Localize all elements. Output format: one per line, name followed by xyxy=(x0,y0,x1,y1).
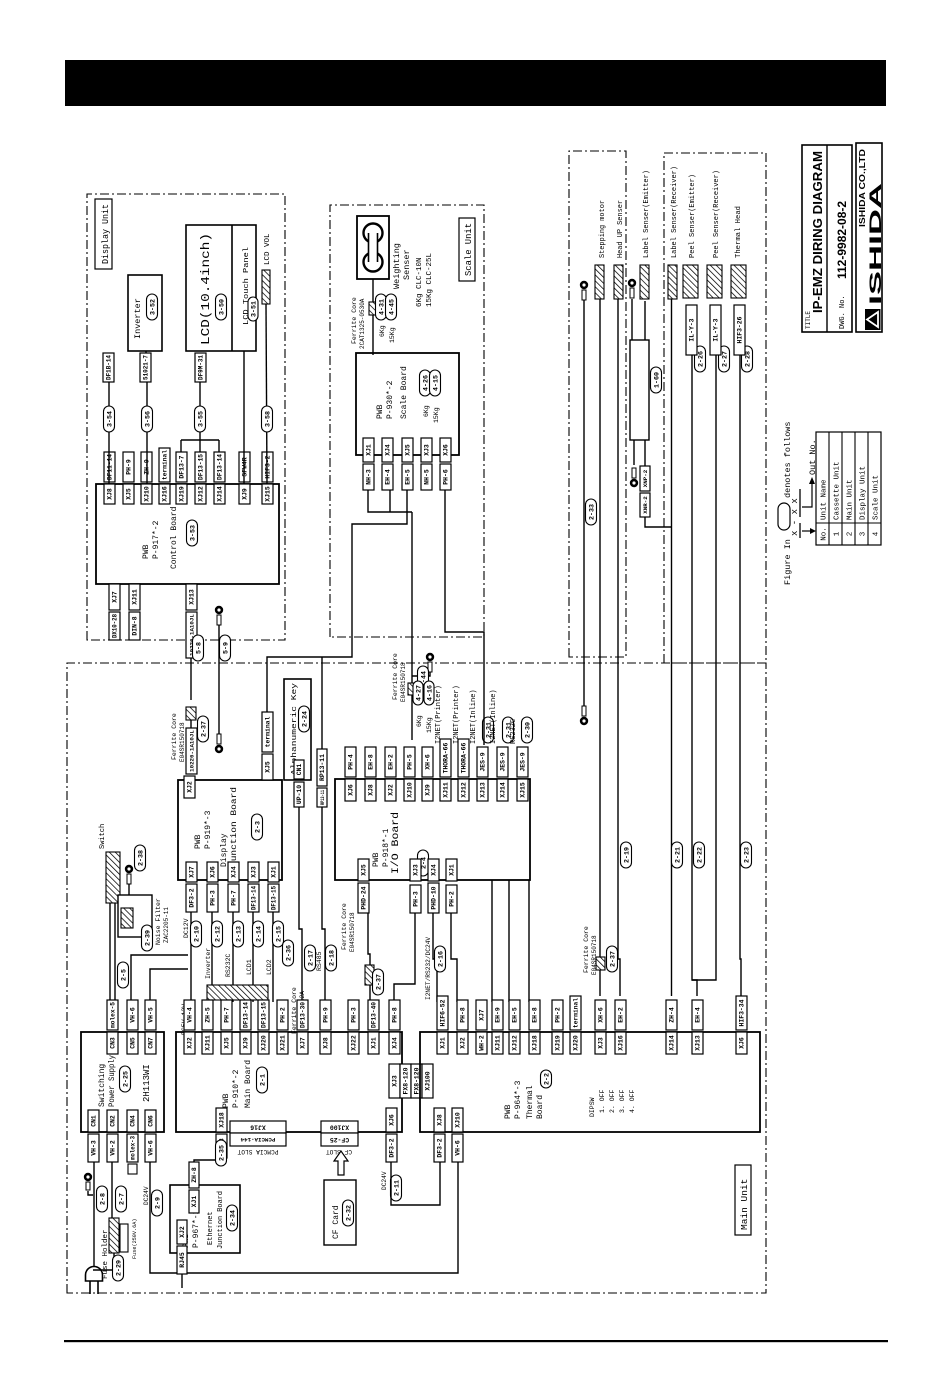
svg-text:XJ21: XJ21 xyxy=(280,1035,287,1051)
svg-text:PCMCIA-144: PCMCIA-144 xyxy=(240,1136,275,1143)
svg-text:3-52: 3-52 xyxy=(149,299,156,315)
svg-text:XJ1: XJ1 xyxy=(449,864,456,876)
svg-text:No.: No. xyxy=(821,527,829,541)
svg-text:4-45: 4-45 xyxy=(388,299,395,315)
svg-text:LCD VOL: LCD VOL xyxy=(264,233,272,265)
svg-text:XJ12: XJ12 xyxy=(198,486,205,502)
svg-text:XJ2: XJ2 xyxy=(187,1037,194,1049)
svg-text:EH-2: EH-2 xyxy=(388,754,395,770)
svg-text:2-17: 2-17 xyxy=(307,950,314,966)
svg-text:XJ4: XJ4 xyxy=(385,444,392,456)
svg-text:2-2: 2-2 xyxy=(543,1073,550,1085)
svg-text:2-23: 2-23 xyxy=(743,847,750,863)
svg-text:CN2: CN2 xyxy=(110,1115,117,1127)
svg-text:2-18: 2-18 xyxy=(328,950,335,966)
svg-text:2-33: 2-33 xyxy=(588,504,595,520)
svg-text:DX10-28: DX10-28 xyxy=(112,614,119,638)
svg-text:Main Unit: Main Unit xyxy=(739,1179,750,1230)
svg-text:2-5: 2-5 xyxy=(120,969,127,981)
svg-text:THORA-66: THORA-66 xyxy=(461,742,468,773)
svg-text:Noise Filter: Noise Filter xyxy=(155,898,162,945)
svg-text:4. OFF: 4. OFF xyxy=(629,1089,636,1113)
svg-text:VH-6: VH-6 xyxy=(455,1140,462,1156)
svg-text:XJ10: XJ10 xyxy=(407,782,414,798)
svg-text:P-910*-2: P-910*-2 xyxy=(232,1069,241,1108)
svg-text:Display Unit: Display Unit xyxy=(100,204,111,264)
svg-text:Figure In: Figure In xyxy=(783,539,793,585)
svg-text:DIPSW: DIPSW xyxy=(589,1097,596,1117)
svg-text:EH-4: EH-4 xyxy=(695,1007,702,1023)
svg-text:4-27: 4-27 xyxy=(415,685,422,701)
svg-text:Senser: Senser xyxy=(402,249,412,280)
svg-text:2-34: 2-34 xyxy=(229,1210,236,1226)
svg-text:DC24V: DC24V xyxy=(381,1171,388,1190)
svg-text:EH-5: EH-5 xyxy=(512,1007,519,1023)
svg-text:RP13-11: RP13-11 xyxy=(319,754,326,781)
svg-text:2-38: 2-38 xyxy=(137,850,144,866)
svg-text:HIF6-52: HIF6-52 xyxy=(440,999,447,1026)
svg-text:PHD-24: PHD-24 xyxy=(361,886,368,909)
svg-text:EH-5: EH-5 xyxy=(405,469,412,485)
svg-text:XJ7: XJ7 xyxy=(112,591,119,603)
svg-text:DF13-14: DF13-14 xyxy=(217,454,224,480)
svg-text:RS232C: RS232C xyxy=(510,719,518,744)
svg-text:x - x x: x - x x xyxy=(790,498,800,536)
svg-text:2-26: 2-26 xyxy=(697,351,704,367)
svg-text:VH-2: VH-2 xyxy=(110,1140,117,1156)
svg-text:PH-2: PH-2 xyxy=(449,891,456,907)
svg-text:VH-6: VH-6 xyxy=(130,1007,137,1023)
svg-text:112-9982-08-2: 112-9982-08-2 xyxy=(835,201,849,279)
svg-text:XJ5: XJ5 xyxy=(224,1037,231,1049)
svg-text:2CAT1325-0530A: 2CAT1325-0530A xyxy=(359,298,366,349)
svg-text:3: 3 xyxy=(860,531,868,536)
svg-text:XJ11: XJ11 xyxy=(443,782,450,798)
svg-text:THORA-66: THORA-66 xyxy=(443,742,450,773)
svg-text:PH-6: PH-6 xyxy=(443,469,450,485)
svg-text:XJ9: XJ9 xyxy=(243,1037,250,1049)
svg-text:Label Senser(Receiver): Label Senser(Receiver) xyxy=(671,166,679,258)
svg-text:XJ3: XJ3 xyxy=(413,864,420,876)
svg-text:PHD-10: PHD-10 xyxy=(431,886,438,909)
svg-text:P-964*-3: P-964*-3 xyxy=(514,1080,523,1119)
svg-text:VH-3: VH-3 xyxy=(91,1140,98,1156)
svg-text:Main Unit: Main Unit xyxy=(847,479,855,520)
svg-text:denotes follows: denotes follows xyxy=(783,421,793,498)
svg-text:I2NET/RS232/DC24V: I2NET/RS232/DC24V xyxy=(425,937,432,1000)
svg-text:2-39: 2-39 xyxy=(144,930,151,946)
svg-text:10226-1A10JL: 10226-1A10JL xyxy=(189,730,196,772)
svg-text:Ferrite Core: Ferrite Core xyxy=(171,713,178,760)
svg-text:2-22: 2-22 xyxy=(696,847,703,863)
svg-text:ZH-4: ZH-4 xyxy=(669,1007,676,1023)
svg-text:PWB: PWB xyxy=(504,1104,513,1119)
svg-text:15Kg: 15Kg xyxy=(433,407,440,423)
svg-text:E04SR150718: E04SR150718 xyxy=(591,935,598,975)
svg-text:XJ11: XJ11 xyxy=(132,589,139,605)
svg-text:XJ7: XJ7 xyxy=(300,1037,307,1049)
svg-text:XJ15: XJ15 xyxy=(265,486,272,502)
svg-text:Fuse(250V.6A): Fuse(250V.6A) xyxy=(132,1219,138,1259)
svg-text:XJ5: XJ5 xyxy=(265,761,272,773)
svg-text:EH-8: EH-8 xyxy=(532,1007,539,1023)
svg-text:ISHIDA CO.,LTD: ISHIDA CO.,LTD xyxy=(857,149,867,227)
svg-text:Switch: Switch xyxy=(99,824,107,849)
svg-text:JES-9: JES-9 xyxy=(480,752,487,771)
svg-text:XJ12: XJ12 xyxy=(512,1035,519,1051)
svg-text:XJ13: XJ13 xyxy=(189,589,196,605)
svg-text:XJ3: XJ3 xyxy=(424,444,431,456)
svg-text:VH-5: VH-5 xyxy=(148,1007,155,1023)
svg-text:XJ6: XJ6 xyxy=(348,784,355,796)
svg-text:XJ5: XJ5 xyxy=(405,444,412,456)
svg-text:XJ19: XJ19 xyxy=(179,486,186,502)
svg-text:Label Senser(Emitter): Label Senser(Emitter) xyxy=(643,170,651,258)
svg-text:Thermal Head: Thermal Head xyxy=(735,206,743,258)
svg-text:XJ18: XJ18 xyxy=(532,1035,539,1051)
svg-text:4-16: 4-16 xyxy=(426,685,433,701)
svg-text:15Kg: 15Kg xyxy=(426,717,433,733)
svg-text:2-9: 2-9 xyxy=(154,1197,161,1209)
svg-text:DF9M-31: DF9M-31 xyxy=(198,355,205,380)
svg-text:UP-10: UP-10 xyxy=(296,785,303,804)
svg-text:DF13-15: DF13-15 xyxy=(261,1002,268,1028)
svg-text:ISHIDA: ISHIDA xyxy=(866,183,885,305)
svg-text:2-15: 2-15 xyxy=(275,926,282,942)
svg-text:2-36: 2-36 xyxy=(285,945,292,961)
svg-text:XJ19: XJ19 xyxy=(555,1035,562,1051)
svg-text:15Kg CLC-25L: 15Kg CLC-25L xyxy=(426,252,434,307)
svg-text:XJ1: XJ1 xyxy=(371,1037,378,1049)
svg-text:2-29: 2-29 xyxy=(115,1260,122,1276)
svg-text:6Kg CLC-10N: 6Kg CLC-10N xyxy=(416,257,424,307)
svg-text:IP-EMZ DIRING DIAGRAM: IP-EMZ DIRING DIAGRAM xyxy=(811,151,825,313)
svg-text:2-37: 2-37 xyxy=(200,721,207,737)
svg-text:XJ8: XJ8 xyxy=(107,488,114,500)
svg-text:Scale Unit: Scale Unit xyxy=(873,475,881,520)
svg-text:XJ3: XJ3 xyxy=(392,1075,399,1087)
svg-text:XJ100: XJ100 xyxy=(425,1071,432,1090)
svg-text:terminal: terminal xyxy=(265,716,272,747)
svg-text:PWB: PWB xyxy=(194,834,203,849)
svg-text:XJ4: XJ4 xyxy=(231,866,238,878)
svg-text:IL-Y-3: IL-Y-3 xyxy=(713,318,720,341)
svg-text:1-60: 1-60 xyxy=(653,372,660,388)
svg-text:15Kg: 15Kg xyxy=(389,327,396,343)
svg-text:DIN-8: DIN-8 xyxy=(132,616,139,635)
svg-text:P-918*-1: P-918*-1 xyxy=(382,828,391,867)
svg-text:I2NET(Inline): I2NET(Inline) xyxy=(470,689,478,744)
svg-text:5-9: 5-9 xyxy=(222,642,229,654)
svg-text:DF13-15: DF13-15 xyxy=(198,454,205,480)
svg-text:EH-2: EH-2 xyxy=(618,1007,625,1023)
svg-text:I2NET(Inline): I2NET(Inline) xyxy=(490,689,498,744)
svg-text:EH-9: EH-9 xyxy=(495,1007,502,1023)
svg-text:I/O Board: I/O Board xyxy=(390,812,402,874)
svg-text:4-31: 4-31 xyxy=(378,299,385,315)
svg-text:1. OFF: 1. OFF xyxy=(599,1089,606,1113)
svg-text:DF3-2: DF3-2 xyxy=(389,1138,396,1157)
svg-text:Inverter: Inverter xyxy=(133,298,143,339)
svg-text:Ferrite Core: Ferrite Core xyxy=(392,653,399,700)
svg-text:VH-4: VH-4 xyxy=(187,1007,194,1023)
svg-text:PWB: PWB xyxy=(376,404,385,419)
svg-text:XJ14: XJ14 xyxy=(217,486,224,502)
svg-text:PH-3: PH-3 xyxy=(351,1007,358,1023)
svg-text:Stepping motor: Stepping motor xyxy=(599,200,607,258)
svg-text:Junction Board: Junction Board xyxy=(230,787,239,867)
svg-text:XJ6: XJ6 xyxy=(389,1114,396,1126)
svg-text:XNP-2: XNP-2 xyxy=(642,469,649,487)
svg-text:I2NET(Printer): I2NET(Printer) xyxy=(435,685,443,744)
svg-text:XJ13: XJ13 xyxy=(695,1035,702,1051)
svg-text:3. OFF: 3. OFF xyxy=(619,1089,626,1113)
svg-text:PH-9: PH-9 xyxy=(126,459,133,475)
svg-text:PH-5: PH-5 xyxy=(407,754,414,770)
svg-text:XJ16: XJ16 xyxy=(250,1124,266,1131)
svg-text:3-50: 3-50 xyxy=(218,299,225,315)
svg-text:2-1: 2-1 xyxy=(259,1074,266,1086)
svg-text:PWB: PWB xyxy=(142,544,151,559)
svg-text:XJ6: XJ6 xyxy=(210,866,217,878)
svg-text:DF13-30: DF13-30 xyxy=(300,1002,307,1028)
svg-text:Unit Name: Unit Name xyxy=(821,479,829,520)
svg-text:4-26: 4-26 xyxy=(422,375,429,391)
svg-text:XJ18: XJ18 xyxy=(219,1112,226,1128)
svg-text:DF3-2: DF3-2 xyxy=(437,1138,444,1157)
svg-text:XJ11: XJ11 xyxy=(495,1035,502,1051)
svg-text:Thermal: Thermal xyxy=(526,1085,535,1119)
svg-text:DF13-15: DF13-15 xyxy=(271,886,278,910)
svg-text:XJ13: XJ13 xyxy=(480,782,487,798)
svg-text:XJ1: XJ1 xyxy=(271,866,278,878)
svg-text:2H113WI: 2H113WI xyxy=(142,1064,152,1102)
svg-text:XJ10: XJ10 xyxy=(455,1112,462,1128)
svg-text:IL-Y-3: IL-Y-3 xyxy=(689,318,696,341)
svg-text:PWB: PWB xyxy=(372,852,381,867)
svg-text:XJ9: XJ9 xyxy=(425,784,432,796)
svg-text:2. OFF: 2. OFF xyxy=(609,1089,616,1113)
svg-text:XNR-2: XNR-2 xyxy=(642,496,649,514)
svg-text:DF13-40: DF13-40 xyxy=(371,1002,378,1028)
svg-text:2-12: 2-12 xyxy=(214,926,221,942)
svg-text:DC24V: DC24V xyxy=(143,1186,150,1205)
svg-text:CF Card: CF Card xyxy=(332,1205,341,1239)
svg-text:2-27: 2-27 xyxy=(721,351,728,367)
svg-text:ZH-5: ZH-5 xyxy=(205,1007,212,1023)
svg-text:Scale Board: Scale Board xyxy=(400,366,409,419)
svg-text:ZAC2205-11: ZAC2205-11 xyxy=(163,907,170,943)
svg-text:XJ3: XJ3 xyxy=(598,1037,605,1049)
svg-text:2-24: 2-24 xyxy=(301,711,308,727)
svg-text:PH-2: PH-2 xyxy=(555,1007,562,1023)
svg-text:2-21: 2-21 xyxy=(674,847,681,863)
svg-text:DF13-14: DF13-14 xyxy=(243,1002,250,1028)
svg-text:2-11: 2-11 xyxy=(393,1180,400,1196)
svg-text:XJ7: XJ7 xyxy=(189,866,196,878)
svg-text:XJ8: XJ8 xyxy=(323,1037,330,1049)
svg-text:EH-4: EH-4 xyxy=(385,469,392,485)
svg-text:PH-7: PH-7 xyxy=(231,890,238,906)
svg-text:2-13: 2-13 xyxy=(235,926,242,942)
svg-text:XJ2: XJ2 xyxy=(179,1226,186,1238)
svg-text:DF11-14: DF11-14 xyxy=(107,454,114,480)
svg-text:XJ100: XJ100 xyxy=(330,1124,349,1131)
svg-text:XJ2: XJ2 xyxy=(388,784,395,796)
svg-text:CN7: CN7 xyxy=(148,1037,155,1049)
svg-text:3-54: 3-54 xyxy=(106,411,113,427)
svg-text:3-56: 3-56 xyxy=(144,411,151,427)
svg-text:6Kg: 6Kg xyxy=(416,715,423,727)
svg-text:XJ6: XJ6 xyxy=(443,444,450,456)
svg-text:XJ14: XJ14 xyxy=(669,1035,676,1051)
svg-text:I2NET(Printer): I2NET(Printer) xyxy=(453,685,461,744)
svg-text:CF-25: CF-25 xyxy=(330,1136,349,1143)
svg-text:XJ7: XJ7 xyxy=(479,1009,486,1021)
svg-text:DF13-7: DF13-7 xyxy=(179,455,186,478)
svg-text:2-32: 2-32 xyxy=(345,1205,352,1221)
svg-text:2-7: 2-7 xyxy=(118,1193,125,1205)
svg-text:RS232C: RS232C xyxy=(225,953,232,977)
svg-text:2-37: 2-37 xyxy=(375,974,382,990)
svg-text:XJ6: XJ6 xyxy=(739,1037,746,1049)
svg-text:Control Board: Control Board xyxy=(170,506,179,569)
svg-text:JES-9: JES-9 xyxy=(520,752,527,771)
svg-text:XJ16: XJ16 xyxy=(618,1035,625,1051)
svg-text:CN3: CN3 xyxy=(110,1037,117,1049)
svg-text:XJ2: XJ2 xyxy=(187,781,194,793)
svg-text:Junction Board: Junction Board xyxy=(217,1191,225,1249)
svg-text:P-930*-2: P-930*-2 xyxy=(386,380,395,419)
svg-text:5-8: 5-8 xyxy=(195,642,202,654)
svg-text:XJ5: XJ5 xyxy=(126,488,133,500)
svg-text:PH-2: PH-2 xyxy=(280,1007,287,1023)
svg-text:XH-6: XH-6 xyxy=(425,754,432,770)
svg-text:XJ2: XJ2 xyxy=(460,1037,467,1049)
svg-text:XJ1: XJ1 xyxy=(440,1037,447,1049)
svg-text:3-53: 3-53 xyxy=(189,525,196,541)
svg-text:PH-3: PH-3 xyxy=(413,891,420,907)
svg-text:Switching: Switching xyxy=(98,1064,107,1107)
svg-text:2-37: 2-37 xyxy=(609,951,616,967)
svg-text:NH-5: NH-5 xyxy=(424,469,431,485)
svg-text:JES-9: JES-9 xyxy=(500,752,507,771)
svg-text:2: 2 xyxy=(847,532,855,537)
svg-text:PWB: PWB xyxy=(222,1093,231,1108)
svg-text:LCD1: LCD1 xyxy=(246,959,253,975)
svg-text:Cassette Unit: Cassette Unit xyxy=(834,461,842,520)
svg-text:CN1: CN1 xyxy=(296,763,303,775)
svg-text:2-16: 2-16 xyxy=(437,951,444,967)
svg-text:Board: Board xyxy=(536,1095,545,1119)
svg-text:2-30: 2-30 xyxy=(524,722,531,738)
svg-text:XJ11: XJ11 xyxy=(205,1035,212,1051)
svg-text:51021-7: 51021-7 xyxy=(143,355,150,380)
svg-text:RP13-11: RP13-11 xyxy=(320,790,326,805)
svg-text:3-55: 3-55 xyxy=(197,411,204,427)
svg-text:Weighting: Weighting xyxy=(392,243,402,289)
svg-text:PH-8: PH-8 xyxy=(392,1007,399,1023)
svg-text:XJ1: XJ1 xyxy=(366,444,373,456)
svg-text:2-14: 2-14 xyxy=(255,926,262,942)
svg-text:2-19: 2-19 xyxy=(623,847,630,863)
svg-text:2-10: 2-10 xyxy=(193,926,200,942)
svg-text:Ferrite Core: Ferrite Core xyxy=(583,926,590,973)
svg-text:2-25: 2-25 xyxy=(122,1071,129,1087)
svg-text:XH-6: XH-6 xyxy=(598,1007,605,1023)
svg-text:Peel Senser(Emitter): Peel Senser(Emitter) xyxy=(689,174,697,258)
svg-text:CN1: CN1 xyxy=(91,1115,98,1127)
svg-text:XJ22: XJ22 xyxy=(351,1035,358,1051)
svg-text:CN5: CN5 xyxy=(130,1037,137,1049)
svg-text:XJ9: XJ9 xyxy=(242,488,249,500)
svg-text:SFW4R: SFW4R xyxy=(242,457,249,476)
svg-text:Ferrite Core: Ferrite Core xyxy=(351,297,358,344)
svg-text:LCD(10.4inch): LCD(10.4inch) xyxy=(200,233,213,345)
svg-text:HIF3-34: HIF3-34 xyxy=(739,999,746,1026)
svg-text:6Kg: 6Kg xyxy=(423,405,430,417)
svg-text:PH-7: PH-7 xyxy=(224,1007,231,1023)
svg-text:XJ1: XJ1 xyxy=(191,1195,198,1207)
svg-text:molex-5: molex-5 xyxy=(110,1002,117,1028)
svg-text:Head UP Senser: Head UP Senser xyxy=(617,200,625,258)
svg-text:XJ4: XJ4 xyxy=(431,864,438,876)
svg-text:PH-3: PH-3 xyxy=(210,890,217,906)
svg-text:Ethernet: Ethernet xyxy=(207,1211,215,1245)
svg-text:NH-3: NH-3 xyxy=(366,469,373,485)
svg-text:4-15: 4-15 xyxy=(432,375,439,391)
svg-text:WH-2: WH-2 xyxy=(479,1035,486,1051)
svg-text:XJ4: XJ4 xyxy=(392,1037,399,1049)
svg-text:XJ12: XJ12 xyxy=(461,782,468,798)
svg-text:FX8-120: FX8-120 xyxy=(403,1067,410,1094)
svg-text:XJ8: XJ8 xyxy=(437,1114,444,1126)
svg-text:2-35: 2-35 xyxy=(218,1145,225,1161)
svg-text:Inverter: Inverter xyxy=(205,948,212,979)
svg-text:Main Board: Main Board xyxy=(244,1060,253,1108)
svg-text:PH-4: PH-4 xyxy=(348,754,355,770)
svg-text:Peel Senser(Receiver): Peel Senser(Receiver) xyxy=(713,170,721,258)
svg-text:P-967*-1: P-967*-1 xyxy=(192,1209,201,1248)
svg-text:XJ15: XJ15 xyxy=(520,782,527,798)
svg-text:2-3: 2-3 xyxy=(254,821,261,833)
svg-text:Ferrite Core: Ferrite Core xyxy=(341,903,348,950)
svg-text:2-8: 2-8 xyxy=(99,1193,106,1205)
svg-text:VH-6: VH-6 xyxy=(148,1140,155,1156)
svg-text:PCMCIA SLOT: PCMCIA SLOT xyxy=(237,1148,278,1155)
svg-text:EH-8: EH-8 xyxy=(368,754,375,770)
svg-text:RJ45: RJ45 xyxy=(179,1252,186,1268)
svg-text:PH-8: PH-8 xyxy=(460,1007,467,1023)
svg-text:molex-3: molex-3 xyxy=(130,1136,137,1160)
svg-text:E04SR150718: E04SR150718 xyxy=(349,912,356,952)
svg-text:XJ3: XJ3 xyxy=(251,866,258,878)
svg-text:CN6: CN6 xyxy=(148,1115,155,1127)
svg-text:ZH-8: ZH-8 xyxy=(191,1167,198,1183)
svg-text:XJ16: XJ16 xyxy=(162,486,169,502)
svg-text:DC12V: DC12V xyxy=(183,918,190,938)
svg-text:Power Supply: Power Supply xyxy=(108,1055,117,1107)
svg-text:6Kg: 6Kg xyxy=(379,325,386,337)
svg-text:XJ20: XJ20 xyxy=(573,1035,580,1051)
svg-text:DF13-14: DF13-14 xyxy=(251,886,258,910)
svg-text:Display Unit: Display Unit xyxy=(860,466,868,520)
svg-text:XJ5: XJ5 xyxy=(361,864,368,876)
svg-text:DF3-2: DF3-2 xyxy=(189,888,196,907)
svg-text:RS485: RS485 xyxy=(316,951,323,971)
svg-text:E04SR150718: E04SR150718 xyxy=(179,722,186,762)
svg-text:XJ10: XJ10 xyxy=(144,486,151,502)
